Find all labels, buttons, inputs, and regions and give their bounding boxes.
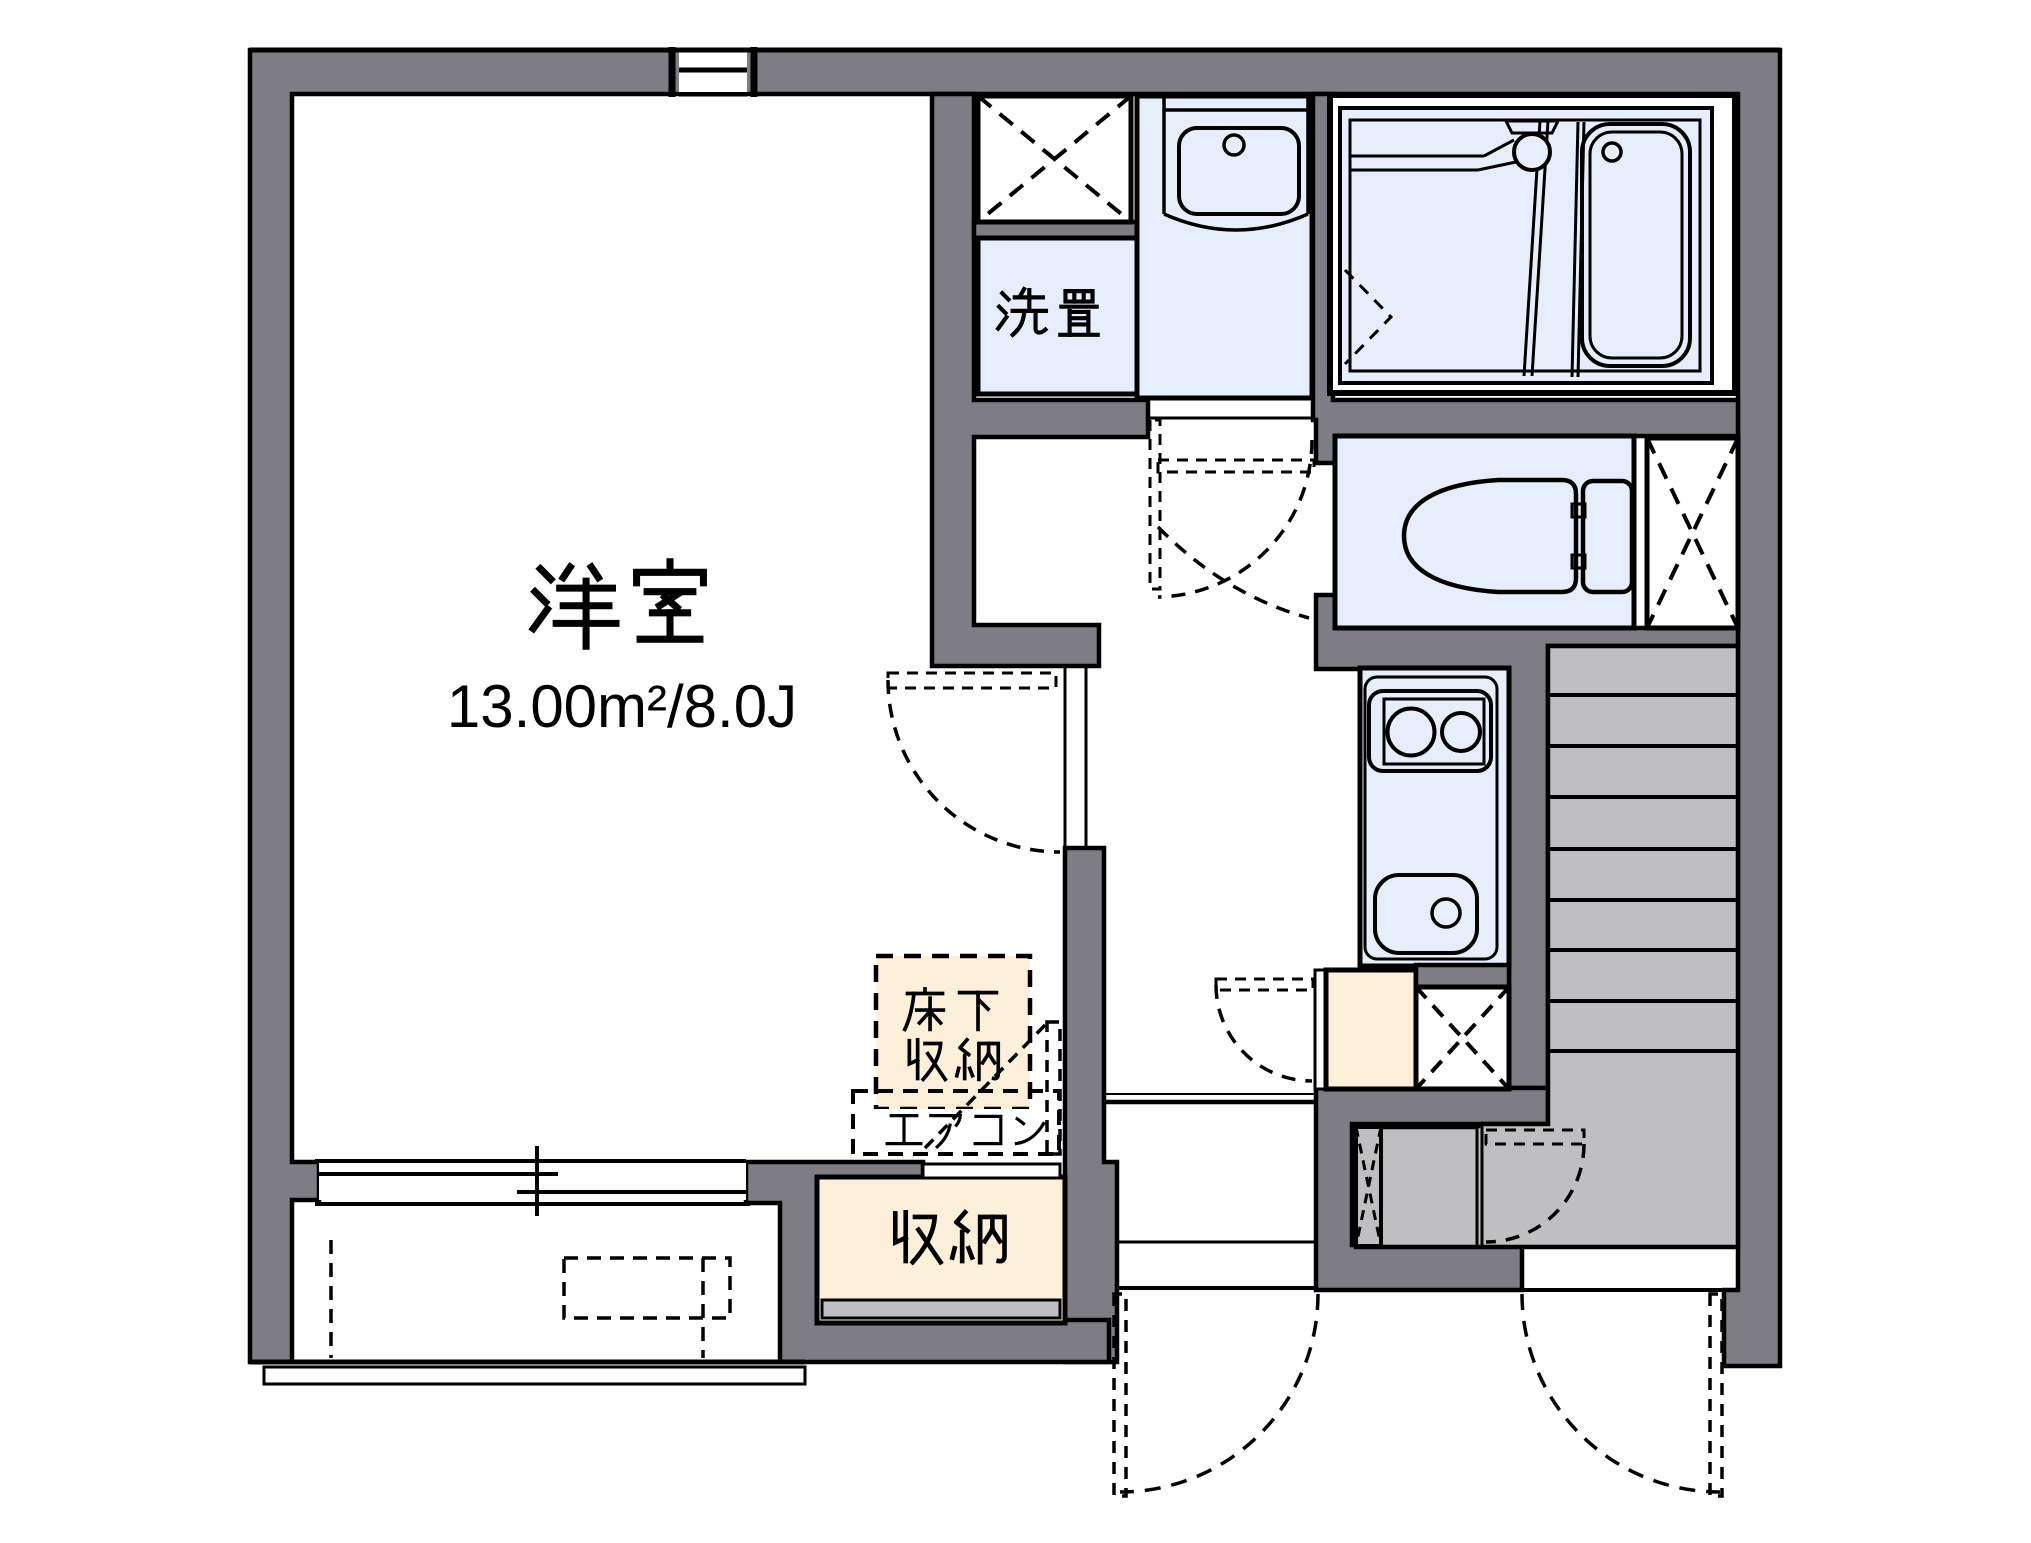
svg-text:13.00m²/8.0J: 13.00m²/8.0J (447, 673, 797, 740)
